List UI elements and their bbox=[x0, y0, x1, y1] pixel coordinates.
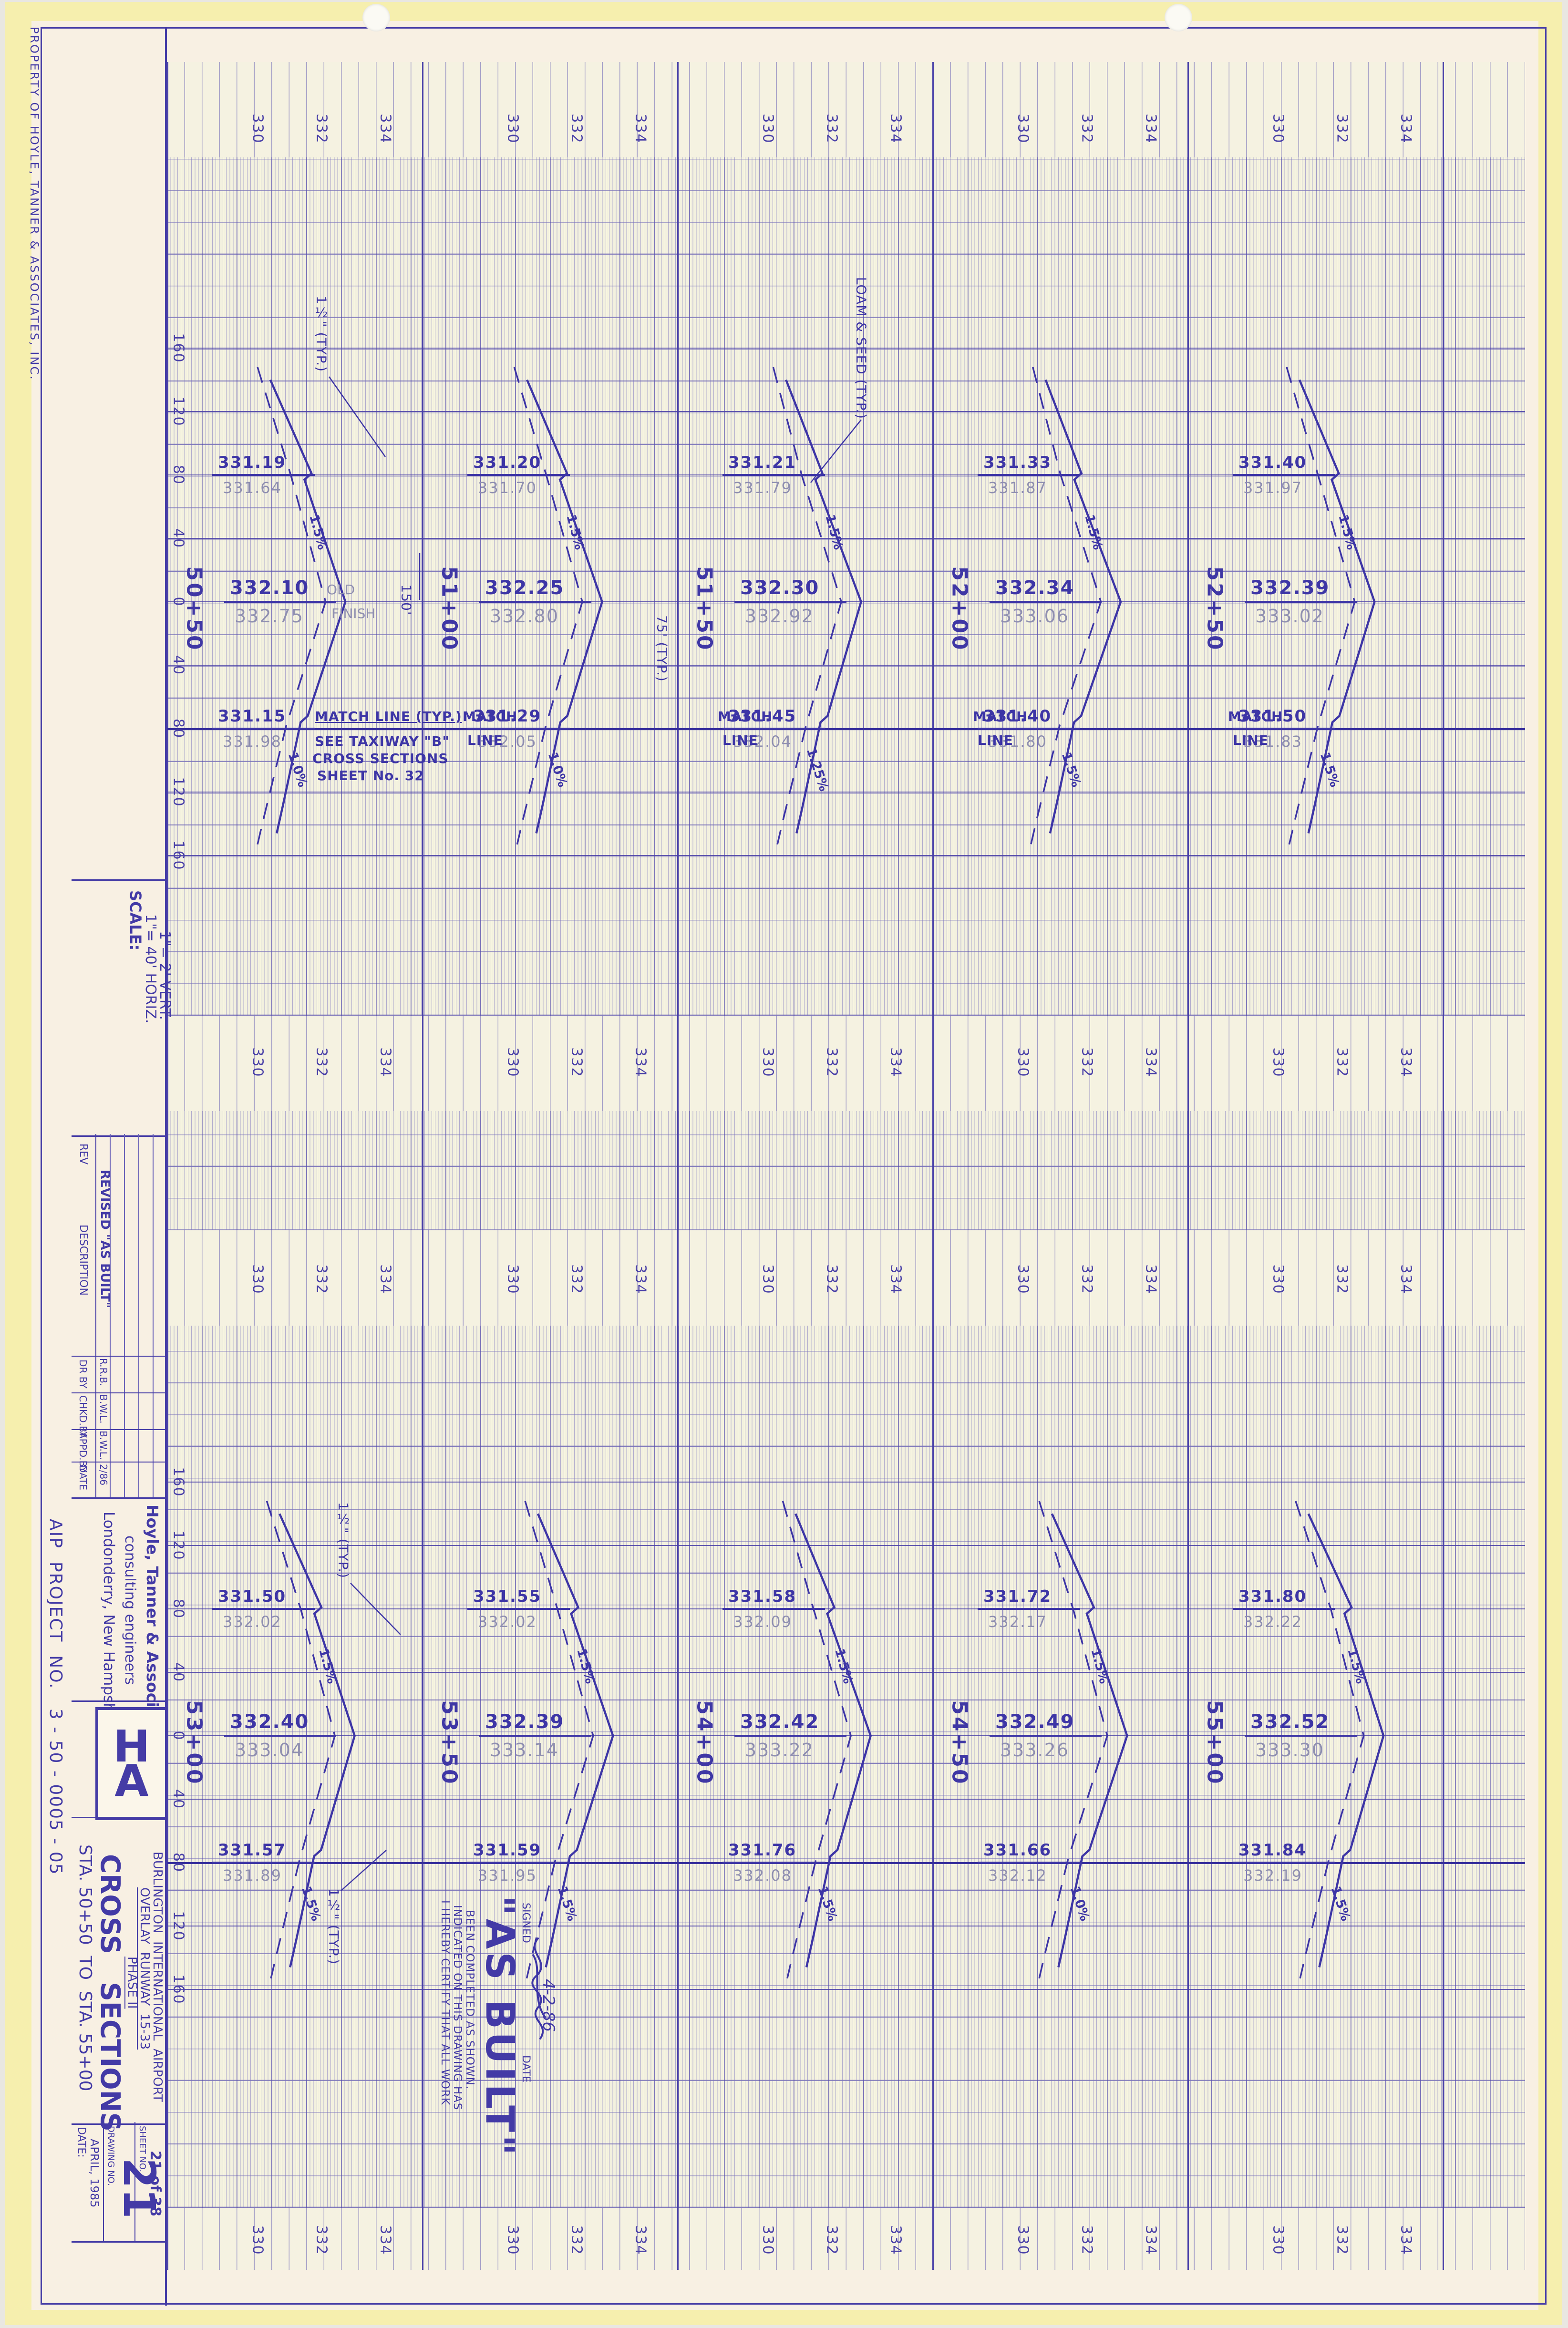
half-width-dimension: 75' (TYP.) bbox=[654, 615, 670, 682]
station-label: 52+50 bbox=[1203, 566, 1227, 651]
elevation-axis-label: 330 bbox=[1015, 2225, 1032, 2255]
elevation-axis-label: 332 bbox=[313, 113, 330, 144]
pavement-thickness-callout: 1½" (TYP.) bbox=[326, 1888, 342, 1965]
date-value: APRIL, 1985 bbox=[88, 2139, 101, 2207]
offset-label: 80 bbox=[170, 1853, 187, 1873]
elevation-axis-label: 332 bbox=[1079, 2225, 1095, 2255]
elevation-axis-label: 334 bbox=[887, 113, 904, 144]
cert-line-3: BEEN COMPLETED AS SHOWN. bbox=[464, 1910, 476, 2090]
scale-box: SCALE: 1"= 40' HORIZ. 1"= 2' VERT. bbox=[72, 879, 166, 1137]
grid-column-boundary bbox=[1187, 62, 1189, 2270]
grid-column-boundary bbox=[167, 62, 168, 2270]
elevation-axis-label: 332 bbox=[568, 113, 585, 144]
annotation-underline bbox=[224, 1735, 336, 1737]
offset-grid-line bbox=[167, 792, 1525, 793]
firm-block: Hoyle, Tanner & Associates, Inc. consult… bbox=[72, 1497, 166, 1702]
offset-label: 120 bbox=[170, 1530, 187, 1560]
annotation-underline bbox=[1233, 1608, 1335, 1610]
cert-date-value: 4-2-86 bbox=[539, 1979, 558, 2032]
elevation-value-pencil: 332.02 bbox=[478, 1613, 537, 1631]
elevation-axis-label: 330 bbox=[1270, 1264, 1287, 1294]
grid-column-boundary bbox=[422, 62, 423, 2270]
elevation-axis-label: 332 bbox=[1334, 1264, 1351, 1294]
offset-grid-line bbox=[167, 855, 1525, 856]
elevation-axis-label: 332 bbox=[1079, 1047, 1095, 1077]
project-line1: BURLINGTON INTERNATIONAL AIRPORT bbox=[150, 1852, 165, 2102]
offset-grid-line bbox=[167, 1799, 1525, 1800]
match-line-label: LINE bbox=[722, 732, 758, 748]
elevation-axis-label: 330 bbox=[1015, 1264, 1032, 1294]
annotation-underline bbox=[978, 1862, 1080, 1864]
station-label: 55+00 bbox=[1203, 1700, 1227, 1785]
sheet-no: 21 of 38 bbox=[147, 2151, 164, 2216]
elevation-value-asbuilt: 331.55 bbox=[473, 1587, 541, 1606]
elevation-axis-label: 330 bbox=[760, 1264, 776, 1294]
see-taxiway-note: SHEET No. 32 bbox=[317, 768, 424, 783]
elevation-value-asbuilt: 331.66 bbox=[983, 1841, 1052, 1860]
annotation-underline bbox=[479, 1735, 591, 1737]
scale-vert: 1"= 2' VERT. bbox=[156, 931, 173, 1020]
station-label: 54+00 bbox=[692, 1700, 717, 1785]
annotation-underline bbox=[224, 601, 336, 603]
elevation-value-asbuilt: 332.42 bbox=[740, 1711, 819, 1733]
date-label: DATE: bbox=[75, 2127, 87, 2158]
elevation-value-asbuilt: 331.15 bbox=[218, 707, 286, 726]
elevation-value-pencil: 332.12 bbox=[988, 1866, 1047, 1885]
match-line-label: MATCH bbox=[1228, 709, 1283, 724]
elevation-value-asbuilt: 331.84 bbox=[1238, 1841, 1307, 1860]
elevation-axis-label: 330 bbox=[505, 1047, 521, 1077]
annotation-underline bbox=[722, 1608, 825, 1610]
match-line-label: MATCH bbox=[973, 709, 1028, 724]
elevation-axis-label: 330 bbox=[1270, 113, 1287, 144]
rev-header: REV bbox=[77, 1143, 89, 1164]
elevation-value-asbuilt: 332.49 bbox=[995, 1711, 1074, 1733]
offset-grid-line bbox=[167, 1545, 1525, 1546]
elevation-axis-label: 334 bbox=[632, 1264, 649, 1294]
offset-grid-line bbox=[167, 1989, 1525, 1990]
as-built-stamp: "AS BUILT" bbox=[477, 1895, 522, 2158]
cert-date-label: DATE bbox=[520, 2055, 532, 2082]
annotation-underline bbox=[467, 728, 570, 730]
elevation-value-pencil: 332.80 bbox=[490, 606, 559, 627]
match-line-label: LINE bbox=[978, 732, 1013, 748]
property-note: PROPERTY OF HOYLE, TANNER & ASSOCIATES, … bbox=[28, 27, 41, 381]
elevation-value-pencil: 331.87 bbox=[988, 479, 1047, 497]
elevation-axis-label: 334 bbox=[377, 1047, 394, 1077]
logo-letter-a: A bbox=[114, 1764, 148, 1798]
elevation-axis-label: 334 bbox=[1398, 1264, 1414, 1294]
offset-label: 80 bbox=[170, 719, 187, 739]
elevation-value-asbuilt: 331.80 bbox=[1238, 1587, 1307, 1606]
elevation-value-pencil: 332.17 bbox=[988, 1613, 1047, 1631]
offset-label: 120 bbox=[170, 396, 187, 426]
pavement-thickness-callout: 1½" (TYP.) bbox=[336, 1502, 351, 1578]
old-finish-note: FINISH bbox=[331, 606, 375, 621]
elevation-axis-label: 334 bbox=[377, 2225, 394, 2255]
elevation-axis-label: 330 bbox=[249, 2225, 266, 2255]
annotation-underline bbox=[990, 1735, 1102, 1737]
elevation-value-asbuilt: 332.10 bbox=[230, 577, 309, 599]
elevation-value-pencil: 331.98 bbox=[223, 732, 282, 751]
sheet-border bbox=[41, 27, 1547, 2305]
chkdby-header: CHKD.BY bbox=[77, 1395, 89, 1438]
elevation-axis-label: 332 bbox=[1079, 113, 1095, 144]
elevation-value-pencil: 332.22 bbox=[1243, 1613, 1302, 1631]
annotation-underline bbox=[722, 728, 825, 730]
elevation-axis-label: 332 bbox=[824, 1264, 840, 1294]
offset-label: 40 bbox=[170, 1662, 187, 1682]
dimension-150: 150' bbox=[399, 584, 414, 615]
annotation-underline bbox=[212, 1608, 315, 1610]
elevation-axis-label: 334 bbox=[632, 1047, 649, 1077]
match-line-label: LINE bbox=[467, 732, 503, 748]
annotation-underline bbox=[1233, 474, 1335, 476]
elevation-value-asbuilt: 331.19 bbox=[218, 453, 286, 472]
sheet-no-label: SHEET NO. bbox=[137, 2126, 147, 2172]
match-line-label: LINE bbox=[1233, 732, 1269, 748]
offset-label: 120 bbox=[170, 777, 187, 807]
offset-grid-line bbox=[167, 1482, 1525, 1483]
elevation-axis-label: 330 bbox=[760, 1047, 776, 1077]
annotation-underline bbox=[978, 728, 1080, 730]
elevation-axis-label: 332 bbox=[313, 1047, 330, 1077]
offset-label: 40 bbox=[170, 655, 187, 675]
elevation-axis-label: 330 bbox=[760, 2225, 776, 2255]
elevation-axis-label: 332 bbox=[1079, 1264, 1095, 1294]
elevation-value-pencil: 333.22 bbox=[745, 1740, 814, 1761]
annotation-underline bbox=[978, 474, 1080, 476]
project-line3: PHASE II bbox=[125, 1957, 139, 2009]
annotation-underline bbox=[722, 1862, 825, 1864]
grid-column-boundary bbox=[677, 62, 679, 2270]
annotation-underline bbox=[212, 474, 315, 476]
elevation-axis-label: 332 bbox=[568, 2225, 585, 2255]
elevation-value-asbuilt: 332.30 bbox=[740, 577, 819, 599]
annotation-underline bbox=[467, 1608, 570, 1610]
elevation-value-asbuilt: 331.40 bbox=[1238, 453, 1307, 472]
signed-label: SIGNED bbox=[520, 1903, 532, 1943]
punch-hole-icon bbox=[1165, 4, 1192, 31]
match-line-typ-note: MATCH LINE (TYP.) bbox=[315, 709, 462, 724]
elevation-axis-label: 334 bbox=[1143, 2225, 1159, 2255]
station-label: 53+50 bbox=[437, 1700, 462, 1785]
firm-location: Londonderry, New Hampshire bbox=[100, 1512, 117, 1731]
old-finish-note: OLD bbox=[327, 582, 355, 597]
elevation-value-asbuilt: 331.76 bbox=[728, 1841, 796, 1860]
annotation-underline bbox=[1233, 728, 1335, 730]
hta-logo: H A bbox=[95, 1707, 168, 1820]
elevation-axis-label: 330 bbox=[249, 1264, 266, 1294]
elevation-axis-label: 334 bbox=[377, 1264, 394, 1294]
elevation-axis-label: 334 bbox=[1398, 113, 1414, 144]
elevation-value-pencil: 332.08 bbox=[733, 1866, 792, 1885]
elevation-axis-label: 332 bbox=[313, 1264, 330, 1294]
revision-description: REVISED "AS BUILT" bbox=[98, 1170, 112, 1308]
elevation-value-asbuilt: 331.59 bbox=[473, 1841, 541, 1860]
elevation-axis-label: 330 bbox=[1015, 113, 1032, 144]
elevation-value-asbuilt: 332.34 bbox=[995, 577, 1074, 599]
elevation-axis-label: 332 bbox=[1334, 2225, 1351, 2255]
elevation-axis-label: 332 bbox=[1334, 113, 1351, 144]
elevation-axis-label: 332 bbox=[824, 113, 840, 144]
elevation-axis-label: 334 bbox=[632, 2225, 649, 2255]
elevation-value-asbuilt: 331.50 bbox=[218, 1587, 286, 1606]
project-title-box: BURLINGTON INTERNATIONAL AIRPORT OVERLAY… bbox=[72, 1817, 166, 2125]
match-line-label: MATCH bbox=[463, 709, 517, 724]
elevation-value-asbuilt: 332.52 bbox=[1250, 1711, 1330, 1733]
elevation-axis-label: 334 bbox=[1398, 1047, 1414, 1077]
sheet-subtitle: STA. 50+50 TO STA. 55+00 bbox=[75, 1844, 95, 2091]
offset-label: 160 bbox=[170, 840, 187, 870]
elevation-value-pencil: 331.64 bbox=[223, 479, 282, 497]
elevation-value-pencil: 332.75 bbox=[235, 606, 304, 627]
elevation-value-pencil: 333.06 bbox=[1000, 606, 1069, 627]
station-label: 51+00 bbox=[437, 566, 462, 651]
offset-label: 80 bbox=[170, 465, 187, 485]
offset-label: 160 bbox=[170, 1467, 187, 1497]
elevation-axis-label: 330 bbox=[505, 1264, 521, 1294]
elevation-axis-label: 330 bbox=[249, 1047, 266, 1077]
elevation-value-pencil: 332.19 bbox=[1243, 1866, 1302, 1885]
elevation-value-pencil: 333.26 bbox=[1000, 1740, 1069, 1761]
cert-line-2: INDICATED ON THIS DRAWING HAS bbox=[451, 1905, 464, 2110]
elevation-value-pencil: 331.97 bbox=[1243, 479, 1302, 497]
firm-tagline: consulting engineers bbox=[122, 1535, 138, 1685]
station-label: 51+50 bbox=[692, 566, 717, 651]
elevation-value-pencil: 332.02 bbox=[223, 1613, 282, 1631]
revision-date: 2/86 bbox=[98, 1464, 109, 1485]
elevation-value-asbuilt: 331.72 bbox=[983, 1587, 1052, 1606]
annotation-underline bbox=[978, 1608, 1080, 1610]
elevation-axis-label: 330 bbox=[1270, 1047, 1287, 1077]
match-line-label: MATCH bbox=[718, 709, 773, 724]
elevation-axis-label: 334 bbox=[1143, 1264, 1159, 1294]
elevation-value-asbuilt: 332.25 bbox=[485, 577, 564, 599]
drby-header: DR BY bbox=[77, 1360, 89, 1389]
elevation-value-asbuilt: 332.40 bbox=[230, 1711, 309, 1733]
annotation-underline bbox=[467, 474, 570, 476]
annotation-underline bbox=[734, 1735, 846, 1737]
offset-label: 160 bbox=[170, 333, 187, 363]
station-label: 52+00 bbox=[948, 566, 972, 651]
offset-label: 40 bbox=[170, 1789, 187, 1809]
elevation-axis-label: 334 bbox=[377, 113, 394, 144]
see-taxiway-note: SEE TAXIWAY "B" bbox=[315, 733, 450, 749]
elevation-value-pencil: 332.92 bbox=[745, 606, 814, 627]
pavement-thickness-callout: 1½" (TYP.) bbox=[314, 296, 330, 372]
offset-grid-line bbox=[167, 665, 1525, 666]
elevation-axis-label: 330 bbox=[1270, 2225, 1287, 2255]
elevation-axis-label: 332 bbox=[1334, 1047, 1351, 1077]
elevation-axis-label: 332 bbox=[568, 1264, 585, 1294]
elevation-value-pencil: 331.89 bbox=[223, 1866, 282, 1885]
elevation-value-asbuilt: 332.39 bbox=[485, 1711, 564, 1733]
revision-chkdby: B.W.L. bbox=[98, 1394, 109, 1423]
annotation-underline bbox=[1233, 1862, 1335, 1864]
elevation-axis-label: 334 bbox=[1143, 113, 1159, 144]
revision-appdby: B.W.L. bbox=[98, 1431, 109, 1460]
revision-drby: R.R.B. bbox=[98, 1358, 109, 1386]
scanned-drawing-sheet: PROPERTY OF HOYLE, TANNER & ASSOCIATES, … bbox=[0, 0, 1568, 2328]
annotation-underline bbox=[479, 601, 591, 603]
annotation-underline bbox=[734, 601, 846, 603]
annotation-underline bbox=[1245, 601, 1357, 603]
annotation-underline bbox=[1245, 1735, 1357, 1737]
elevation-axis-label: 330 bbox=[505, 113, 521, 144]
elevation-axis-label: 334 bbox=[632, 113, 649, 144]
offset-grid-line bbox=[167, 348, 1525, 349]
station-label: 53+00 bbox=[182, 1700, 206, 1785]
elevation-axis-label: 330 bbox=[760, 113, 776, 144]
see-taxiway-note: CROSS SECTIONS bbox=[312, 751, 449, 766]
sheet-title: CROSS SECTIONS bbox=[94, 1854, 125, 2132]
offset-label: 40 bbox=[170, 528, 187, 548]
station-label: 54+50 bbox=[948, 1700, 972, 1785]
offset-grid-line bbox=[167, 538, 1525, 539]
elevation-value-pencil: 331.70 bbox=[478, 479, 537, 497]
elevation-value-asbuilt: 331.33 bbox=[983, 453, 1052, 472]
elevation-axis-label: 330 bbox=[249, 113, 266, 144]
annotation-underline bbox=[990, 601, 1102, 603]
elevation-axis-label: 332 bbox=[313, 2225, 330, 2255]
offset-label: 120 bbox=[170, 1911, 187, 1941]
elevation-value-pencil: 333.02 bbox=[1255, 606, 1324, 627]
elevation-axis-label: 332 bbox=[824, 1047, 840, 1077]
elevation-axis-label: 334 bbox=[887, 2225, 904, 2255]
offset-grid-line bbox=[167, 1926, 1525, 1926]
annotation-underline bbox=[212, 1862, 315, 1864]
cert-line-1: I HEREBY CERTIFY THAT ALL WORK bbox=[439, 1900, 451, 2105]
aip-project-no: AIP PROJECT NO. 3 - 50 - 0005 - 05 bbox=[46, 1519, 65, 1875]
grid-column-boundary bbox=[1443, 62, 1444, 2270]
elevation-axis-label: 334 bbox=[1143, 1047, 1159, 1077]
elevation-value-pencil: 332.09 bbox=[733, 1613, 792, 1631]
elevation-value-asbuilt: 332.39 bbox=[1250, 577, 1330, 599]
elevation-value-pencil: 333.30 bbox=[1255, 1740, 1324, 1761]
elevation-axis-label: 330 bbox=[1015, 1047, 1032, 1077]
annotation-underline bbox=[212, 728, 315, 730]
grid-column-boundary bbox=[932, 62, 934, 2270]
elevation-axis-label: 334 bbox=[887, 1047, 904, 1077]
elevation-value-asbuilt: 331.20 bbox=[473, 453, 541, 472]
annotation-underline bbox=[722, 474, 825, 476]
elevation-axis-label: 334 bbox=[887, 1264, 904, 1294]
description-header: DESCRIPTION bbox=[77, 1225, 89, 1296]
offset-label: 160 bbox=[170, 1974, 187, 2004]
elevation-value-pencil: 333.04 bbox=[235, 1740, 304, 1761]
elevation-value-pencil: 333.14 bbox=[490, 1740, 559, 1761]
annotation-underline bbox=[467, 1862, 570, 1864]
elevation-value-asbuilt: 331.58 bbox=[728, 1587, 796, 1606]
offset-label: 80 bbox=[170, 1599, 187, 1619]
elevation-axis-label: 330 bbox=[505, 2225, 521, 2255]
station-label: 50+50 bbox=[182, 566, 206, 651]
elevation-value-pencil: 331.95 bbox=[478, 1866, 537, 1885]
offset-grid-line bbox=[167, 411, 1525, 412]
loam-seed-callout: LOAM & SEED (TYP.) bbox=[854, 277, 869, 419]
project-line2: OVERLAY RUNWAY 15-33 bbox=[137, 1887, 152, 2050]
elevation-axis-label: 334 bbox=[1398, 2225, 1414, 2255]
elevation-value-asbuilt: 331.21 bbox=[728, 453, 796, 472]
elevation-axis-label: 332 bbox=[824, 2225, 840, 2255]
date-header: DATE bbox=[77, 1465, 89, 1490]
elevation-value-pencil: 331.79 bbox=[733, 479, 792, 497]
sheet-number-box: DATE: APRIL, 1985 DRAWING NO. 21 SHEET N… bbox=[72, 2122, 166, 2243]
elevation-value-asbuilt: 331.57 bbox=[218, 1841, 286, 1860]
revision-table: REV DESCRIPTION DR BY CHKD.BY APPD.BY DA… bbox=[72, 1134, 166, 1499]
elevation-axis-label: 332 bbox=[568, 1047, 585, 1077]
punch-hole-icon bbox=[362, 4, 390, 31]
